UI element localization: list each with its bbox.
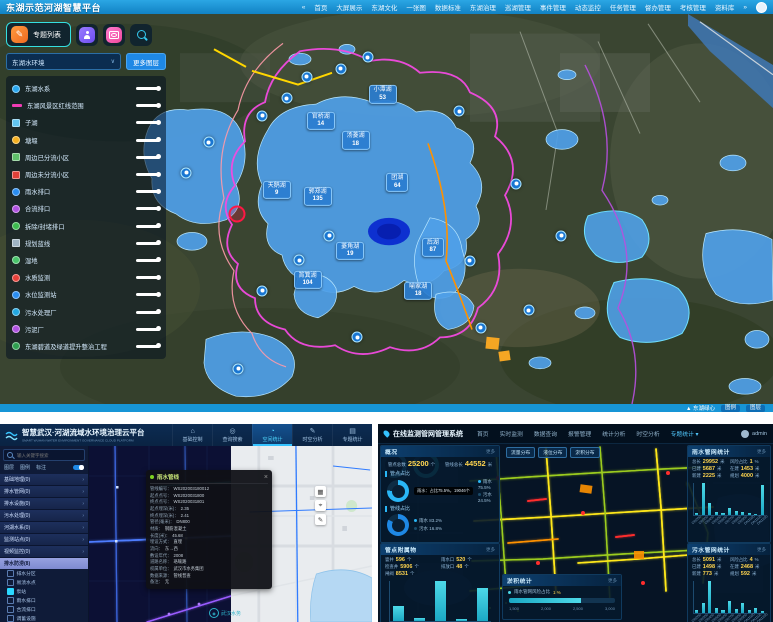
layer-toggle[interactable]	[136, 259, 160, 262]
layer-icon	[12, 104, 22, 107]
lake-name: 汤菱湖	[347, 133, 365, 139]
attribute-value: 珞喻路	[173, 559, 186, 566]
stat: 闸阀8531个	[385, 571, 439, 577]
layer-check-row[interactable]: 合流排口	[0, 605, 88, 614]
bar-column: DN800	[734, 581, 739, 613]
layer-label: 周边已分流小区	[25, 153, 131, 162]
bl-tab-icon: ✎	[310, 428, 316, 435]
nav-item[interactable]: 考核管理	[680, 2, 706, 12]
attribute-row: 备注： 无	[150, 579, 268, 586]
lake-name: 团湖	[391, 175, 403, 181]
map-poi-marker[interactable]	[335, 63, 346, 74]
layer-label: 东湖水系	[25, 84, 131, 93]
layer-row[interactable]: 周边已分流小区	[12, 149, 160, 166]
br-username: admin	[752, 431, 767, 437]
layer-group-row[interactable]: 排水设施(0)›	[0, 498, 88, 510]
attribute-key: 终点点号：	[150, 499, 171, 506]
lake-name: 郭郑湖	[309, 189, 327, 195]
bar-column: DN200	[694, 581, 699, 613]
attribute-value: 管线普查	[173, 573, 190, 580]
more-link[interactable]: 更多	[486, 449, 495, 455]
status-chip-button[interactable]: 图层	[746, 405, 765, 412]
attribute-key: 道路名称：	[150, 559, 171, 566]
chevron-right-icon: ›	[82, 513, 84, 519]
lake-name: 官桥湖	[312, 114, 330, 120]
bl-layer-sidebar: 图层图例标注 基础地理(0)› 排水管网(0)› 排水设施(0)› 污水处理(0…	[0, 446, 89, 622]
lines-donut-chart[interactable]	[387, 514, 409, 536]
bar	[708, 503, 711, 515]
nav-item[interactable]: 数据标准	[435, 2, 461, 12]
donut2-subtitle: 管线占比	[381, 504, 499, 513]
lake-label[interactable]: 小潭湖 53	[369, 85, 397, 103]
donut2-legend: 雨水 83.2%污水 16.8%	[414, 518, 442, 532]
layer-icon	[12, 119, 20, 127]
bar	[761, 485, 764, 515]
attribute-value: 直埋	[173, 539, 182, 546]
bar	[728, 601, 731, 613]
lake-label[interactable]: 筲箕湖 104	[294, 270, 322, 288]
nav-item[interactable]: 事件管理	[540, 2, 566, 12]
map-poi-marker[interactable]	[294, 255, 305, 266]
legend-item: 雨水 75.5%	[478, 479, 493, 490]
checkbox[interactable]	[7, 570, 14, 577]
nav-item[interactable]: 东湖文化	[371, 2, 397, 12]
layer-label: 周边未分流小区	[25, 170, 131, 179]
theme-dropdown[interactable]: 东湖水环境∨	[6, 53, 121, 70]
watermark-text: 武汉水务	[221, 610, 241, 617]
layer-toggle[interactable]	[136, 242, 160, 245]
bar-column: DN1200	[760, 483, 765, 515]
nav-item[interactable]: 资料库	[715, 2, 735, 12]
lake-label[interactable]: 郭郑湖 135	[304, 187, 332, 205]
alert-ring-marker[interactable]	[229, 206, 246, 223]
wave-logo-icon	[5, 430, 18, 441]
map-poi-marker[interactable]	[301, 71, 312, 82]
layer-row[interactable]: 污水处理厂	[12, 303, 160, 320]
layer-toggle[interactable]	[136, 345, 160, 348]
layer-toggle[interactable]	[136, 156, 160, 159]
lake-name: 菱角湖	[341, 244, 359, 250]
user-avatar[interactable]	[756, 2, 767, 13]
layer-label: 污泥厂	[25, 325, 131, 334]
br-user[interactable]: admin	[741, 430, 767, 438]
layer-row[interactable]: 周边未分流小区	[12, 166, 160, 183]
fittings-stats: 窨井596个雨水口520个检查井5906个排放口48个闸阀8531个	[381, 555, 499, 579]
close-icon[interactable]: ×	[264, 474, 268, 481]
lake-name: 后湖	[427, 240, 439, 246]
feature-info-popup: 雨水管线 × 管线编号： WS202003180012 起点点号： WS2020…	[146, 470, 272, 589]
layer-icon	[12, 205, 20, 213]
layer-list: 东湖水系 东湖风景区红线范围 子湖 塘堰 周边已分流小区	[6, 76, 166, 359]
map-poi-marker[interactable]	[352, 332, 363, 343]
bl-tab[interactable]: ◔ 空间统计	[252, 424, 292, 446]
points-donut-chart[interactable]	[387, 480, 409, 502]
more-link[interactable]: 更多	[486, 547, 495, 553]
layer-row[interactable]: 塘堰	[12, 132, 160, 149]
bar	[754, 608, 757, 613]
layer-toggle[interactable]	[136, 328, 160, 331]
layer-toggle[interactable]	[136, 276, 160, 279]
sewage-pipes-panel: 污水管网统计 更多 总长5091米风险占比4%已建1498米在建2468米新建7…	[687, 543, 771, 622]
layer-label: 子湖	[25, 118, 131, 127]
sidebar-tabs: 图层图例标注	[0, 464, 88, 474]
locate-tool-button[interactable]: ⌖	[315, 500, 326, 511]
layer-toggle[interactable]	[136, 207, 160, 210]
layer-group-row[interactable]: 视频监控(0)›	[0, 546, 88, 558]
check-label: 排水分区	[17, 570, 36, 577]
nav-item[interactable]: 动态监控	[575, 2, 601, 12]
layer-label: 东湖碧道及绿道提升整治工程	[25, 342, 131, 351]
section-header-flood[interactable]: 排水防涝(8)	[0, 558, 88, 569]
chevron-right-icon: ›	[82, 477, 84, 483]
bar	[715, 608, 718, 613]
layer-icon	[12, 171, 20, 179]
topic-list-button[interactable]: ✎ 专题列表	[6, 22, 71, 47]
br-nav-item[interactable]: 首页	[477, 429, 489, 438]
rain-stats: 总长29952米风险占比1%已建5687米在建1453米新建2225米规划400…	[688, 457, 770, 481]
donut-tooltip: 雨水：占比75.5%，19046个	[414, 487, 473, 495]
bar-column: DN600	[720, 581, 725, 613]
layer-check-row[interactable]: 雨水排口	[0, 596, 88, 605]
layer-label: 东湖风景区红线范围	[27, 101, 131, 110]
lake-value: 18	[347, 140, 365, 147]
map-poi-marker[interactable]	[523, 305, 534, 316]
bl-tab[interactable]: ⌂ 基础控制	[172, 424, 212, 446]
map-poi-marker[interactable]	[281, 93, 292, 104]
bar	[748, 610, 751, 613]
feature-type-dot	[150, 475, 154, 479]
layer-row[interactable]: 湿地	[12, 252, 160, 269]
bl-tab[interactable]: ▤ 专题统计	[332, 424, 372, 446]
status-chip-button[interactable]: 图例	[721, 405, 740, 412]
search-tool-button[interactable]	[130, 24, 152, 46]
layer-icon	[12, 291, 20, 299]
panel-title: 污水管网统计	[692, 545, 730, 554]
sewage-bar-chart[interactable]: DN200DN300DN400DN500DN600DN700DN800DN900…	[693, 581, 765, 614]
overview-stats: 管点总数25200个 管线总长44552米	[381, 457, 499, 469]
more-link[interactable]: 更多	[608, 578, 617, 584]
bar	[477, 588, 488, 621]
panel-title: 概况	[385, 447, 398, 456]
br-nav-item[interactable]: 统计分析	[602, 429, 625, 438]
stat: 管线总长44552米	[445, 459, 492, 468]
attribute-row: 流向： 东→西	[150, 546, 268, 553]
lake-value: 18	[409, 291, 427, 298]
fittings-panel: 管点附属物 更多 窨井596个雨水口520个检查井5906个排放口48个闸阀85…	[380, 543, 500, 622]
poi-tool-button[interactable]	[76, 24, 98, 46]
attribute-value: WS202003180012	[173, 486, 209, 493]
layer-group-label: 排水设施(0)	[4, 500, 30, 507]
map-poi-marker[interactable]	[181, 167, 192, 178]
bar	[435, 581, 446, 621]
sidebar-tab[interactable]: 标注	[36, 464, 46, 471]
chevron-right-icon: ›	[82, 537, 84, 543]
map-poi-marker[interactable]	[324, 230, 335, 241]
layer-group-row[interactable]: 监测站点(0)›	[0, 534, 88, 546]
stat: 总长5091米	[692, 557, 728, 563]
nav-back-icon[interactable]: «	[302, 4, 306, 11]
stat: 总长29952米	[692, 459, 728, 465]
attribute-key: 权属单位：	[150, 566, 171, 573]
layer-toggle[interactable]	[136, 139, 160, 142]
heatmap-mode-tab[interactable]: 淤积分布	[570, 447, 599, 458]
heatmap-mode-tab[interactable]: 流量分布	[506, 447, 535, 458]
bl-tab-icon: ⌂	[190, 428, 194, 435]
layer-row[interactable]: 东湖风景区红线范围	[12, 97, 160, 114]
heatmap-mode-tab[interactable]: 液位分布	[538, 447, 567, 458]
layer-group-label: 河湖水系(0)	[4, 524, 30, 531]
lake-value: 104	[299, 280, 317, 287]
layer-icon	[12, 325, 20, 333]
map-poi-marker[interactable]	[511, 178, 522, 189]
nav-item[interactable]: 大屏展示	[336, 2, 362, 12]
layer-group-row[interactable]: 河湖水系(0)›	[0, 522, 88, 534]
layer-row[interactable]: 拆除/封堵排口	[12, 218, 160, 235]
br-nav-item[interactable]: 实时监测	[500, 429, 523, 438]
stat: 风险占比1%	[730, 459, 766, 465]
bl-tab-icon: ◔	[270, 428, 274, 435]
br-nav-item[interactable]: 时空分析	[636, 429, 659, 438]
checkbox[interactable]	[7, 597, 14, 604]
search-icon	[137, 30, 146, 39]
bar-column: DN1000	[747, 581, 752, 613]
bar	[741, 603, 744, 613]
layer-check-row[interactable]: 泵站	[0, 587, 88, 596]
bl-tab[interactable]: ◎ 查询搜索	[212, 424, 252, 446]
layers-tool-button[interactable]: ▦	[315, 486, 326, 497]
nav-item[interactable]: 巡湖管理	[505, 2, 531, 12]
nav-item[interactable]: 东湖治理	[470, 2, 496, 12]
bar-column: DN900	[740, 581, 745, 613]
layer-group-row[interactable]: 污水处理(0)›	[0, 510, 88, 522]
nav-more-icon[interactable]: »	[743, 4, 747, 11]
map-poi-marker[interactable]	[464, 255, 475, 266]
lake-value: 9	[268, 190, 286, 197]
layer-toggle[interactable]	[136, 87, 160, 90]
lake-label[interactable]: 汤菱湖 18	[342, 131, 370, 149]
sidebar-tab[interactable]: 图层	[4, 464, 14, 471]
nav-item[interactable]: 任务管理	[610, 2, 636, 12]
layer-check-row[interactable]: 调蓄设施	[0, 614, 88, 622]
layer-row[interactable]: 污泥厂	[12, 321, 160, 338]
attribute-row: 管径(毫米)： DN800	[150, 519, 268, 526]
attribute-row: 埋设方式： 直埋	[150, 539, 268, 546]
layer-label: 雨水排口	[25, 187, 131, 196]
lake-label[interactable]: 官桥湖 14	[307, 112, 335, 130]
checkbox[interactable]	[7, 588, 14, 595]
attribute-key: 埋设方式：	[150, 539, 171, 546]
layer-toggle[interactable]	[136, 121, 160, 124]
bl-tabs: ⌂ 基础控制 ◎ 查询搜索 ◔ 空间统计 ✎ 时空分析 ▤ 专题统计	[172, 424, 372, 446]
layer-row[interactable]: 东湖碧道及绿道提升整治工程	[12, 338, 160, 355]
draw-tool-button[interactable]: ✎	[315, 514, 326, 525]
checkbox[interactable]	[7, 579, 14, 586]
bar-column: DN1100	[753, 581, 758, 613]
layer-toggle[interactable]	[136, 104, 160, 107]
map-poi-marker[interactable]	[556, 230, 567, 241]
lake-name: 筲箕湖	[299, 272, 317, 278]
stat: 在建1453米	[730, 466, 766, 472]
stat: 新建773米	[692, 571, 728, 577]
nav-item[interactable]: 一张图	[406, 2, 426, 12]
br-nav-item[interactable]: 数据查询	[534, 429, 557, 438]
layer-row[interactable]: 规划蓝线	[12, 235, 160, 252]
check-label: 雨水排口	[17, 597, 36, 604]
attribute-key: 起点埋深(米)：	[150, 506, 179, 513]
layer-check-row[interactable]: 排水分区	[0, 569, 88, 578]
br-nav-item[interactable]: 报警管理	[568, 429, 591, 438]
layer-toggle[interactable]	[136, 173, 160, 176]
bar-column: 2018	[411, 581, 429, 621]
layer-toggle[interactable]	[136, 190, 160, 193]
lake-label[interactable]: 喻家湖 18	[404, 281, 432, 299]
map-poi-marker[interactable]	[233, 363, 244, 374]
layer-group-row[interactable]: 基础地理(0)›	[0, 474, 88, 486]
fittings-bar-chart[interactable]: 20172018201920202021	[389, 581, 491, 622]
map-status-bar: ▲ 东湖绿心 图例图层	[0, 404, 773, 412]
nav-item[interactable]: 首页	[314, 2, 327, 12]
layer-icon	[12, 239, 20, 247]
br-nav-active[interactable]: 专题统计 ▾	[671, 429, 699, 438]
layer-icon	[12, 308, 20, 316]
popup-title: 雨水管线	[157, 473, 261, 481]
layer-toggle[interactable]	[136, 311, 160, 314]
layer-row[interactable]: 雨水排口	[12, 183, 160, 200]
bar-column: DN1100	[753, 483, 758, 515]
bar-column: DN800	[734, 483, 739, 515]
stat: 规划4000米	[730, 473, 766, 479]
bar-column: DN600	[720, 483, 725, 515]
top-nav: « 首页大屏展示东湖文化一张图数据标准东湖治理巡湖管理事件管理动态监控任务管理督…	[302, 2, 767, 13]
bar	[456, 619, 467, 621]
theme-dropdown-value: 东湖水环境	[12, 57, 45, 67]
more-layers-button[interactable]: 更多图层	[126, 53, 166, 70]
lake-value: 19	[341, 251, 359, 258]
pipeline-map[interactable]: ▦ ⌖ ✎ 雨水管线 × 管线编号： WS202003180012 起点	[89, 446, 372, 622]
silt-panel: 淤积统计 更多 雨水管网风险占比 1 % 1,5002,0002,5003,00…	[502, 574, 622, 620]
lake-label[interactable]: 天鹅湖 9	[263, 180, 291, 198]
map-poi-marker[interactable]	[362, 52, 373, 63]
bar	[702, 483, 705, 515]
attribute-row: 权属单位： 武汉市水务集团	[150, 566, 268, 573]
layer-row[interactable]: 子湖	[12, 114, 160, 131]
overview-panel: 概况 更多 管点总数25200个 管线总长44552米 管点占比 雨水：占比75…	[380, 445, 500, 543]
chevron-right-icon: ›	[82, 501, 84, 507]
bar-column: DN700	[727, 581, 732, 613]
bar-column: DN300	[701, 483, 706, 515]
east-lake-platform-section: 东湖示范河湖智慧平台 « 首页大屏展示东湖文化一张图数据标准东湖治理巡湖管理事件…	[0, 0, 773, 412]
layer-check-row[interactable]: 易渍水点	[0, 578, 88, 587]
map-poi-marker[interactable]	[454, 106, 465, 117]
layer-icon	[12, 256, 20, 264]
rain-bar-chart[interactable]: DN200DN300DN400DN500DN600DN700DN800DN900…	[693, 483, 765, 516]
layer-row[interactable]: 水位监测站	[12, 286, 160, 303]
person-icon	[83, 31, 91, 39]
map-poi-marker[interactable]	[475, 322, 486, 333]
donut1-legend: 雨水 75.5%污水 24.5%	[478, 479, 493, 503]
bl-tab-label: 查询搜索	[223, 436, 243, 443]
bar-column: DN900	[740, 483, 745, 515]
layer-row[interactable]: 东湖水系	[12, 80, 160, 97]
camera-icon	[109, 31, 119, 39]
checkbox[interactable]	[7, 615, 14, 622]
map-poi-marker[interactable]	[203, 137, 214, 148]
legend-item: 污水 16.8%	[414, 526, 442, 532]
sidebar-search-input[interactable]	[15, 452, 81, 459]
more-link[interactable]: 更多	[757, 449, 766, 455]
chevron-right-icon: ›	[82, 549, 84, 555]
bar-column: DN200	[694, 483, 699, 515]
lake-label[interactable]: 团湖 64	[386, 173, 408, 191]
bar	[754, 514, 757, 515]
bl-tab[interactable]: ✎ 时空分析	[292, 424, 332, 446]
layer-icon	[12, 153, 20, 161]
attribute-value: 无	[165, 579, 169, 586]
donut1-subtitle: 管点占比	[381, 469, 499, 478]
bl-tab-label: 空间统计	[263, 436, 283, 443]
layer-toolbox: ✎ 专题列表 东湖水环境∨ 更多图层 东湖水系 东湖风景区红线范围	[6, 22, 166, 359]
lake-value: 14	[312, 121, 330, 128]
layer-row[interactable]: 合流排口	[12, 200, 160, 217]
stat: 新建2225米	[692, 473, 728, 479]
layer-label: 水位监测站	[25, 290, 131, 299]
lake-name: 天鹅湖	[268, 182, 286, 188]
bl-title: 智慧武汉·河湖流域水环境治理云平台	[22, 427, 165, 438]
sidebar-tab[interactable]: 图例	[20, 464, 30, 471]
layer-group-label: 监测站点(0)	[4, 536, 30, 543]
lake-label[interactable]: 后湖 87	[422, 238, 444, 256]
attribute-key: 管线编号：	[150, 486, 171, 493]
stat: 管点总数25200个	[388, 459, 435, 468]
camera-tool-button[interactable]	[103, 24, 125, 46]
layer-icon	[12, 274, 20, 282]
bar	[715, 512, 718, 515]
layer-group-label: 基础地理(0)	[4, 476, 30, 483]
map-poi-marker[interactable]	[257, 285, 268, 296]
map-poi-marker[interactable]	[257, 110, 268, 121]
stat: 雨水口520个	[441, 557, 495, 563]
lake-label[interactable]: 菱角湖 19	[336, 242, 364, 260]
layer-toggle[interactable]	[136, 225, 160, 228]
droplet-logo-icon	[382, 429, 390, 437]
layer-label: 水质监测	[25, 273, 131, 282]
axis-tick: 3,000	[605, 606, 615, 611]
stat: 在建2468米	[730, 564, 766, 570]
chevron-right-icon: ›	[82, 489, 84, 495]
layer-row[interactable]: 水质监测	[12, 269, 160, 286]
bar-column: 2021	[473, 581, 491, 621]
checkbox[interactable]	[7, 606, 14, 613]
watermark: ◉ 武汉水务	[209, 608, 241, 618]
layer-group-row[interactable]: 排水管网(0)›	[0, 486, 88, 498]
sidebar-search[interactable]	[3, 449, 85, 461]
silt-legend: 雨水管网风险占比 1 %	[503, 586, 621, 596]
bl-header: 智慧武汉·河湖流域水环境治理云平台 SMART WUHAN WATER ENVI…	[0, 424, 372, 446]
bar-column: 2020	[452, 581, 470, 621]
layer-group-label: 污水处理(0)	[4, 512, 30, 519]
sidebar-toggle[interactable]	[73, 465, 84, 471]
axis-tick: 1,500	[509, 606, 519, 611]
heatmap-mode-tabs: 流量分布液位分布淤积分布	[506, 447, 600, 458]
bar	[748, 513, 751, 515]
check-label: 调蓄设施	[17, 615, 36, 622]
nav-item[interactable]: 督办管理	[645, 2, 671, 12]
layer-toggle[interactable]	[136, 293, 160, 296]
watermark-logo-icon: ◉	[209, 608, 219, 618]
br-nav: 首页实时监测数据查询报警管理统计分析时空分析 专题统计 ▾	[477, 429, 698, 438]
more-link[interactable]: 更多	[757, 547, 766, 553]
lake-name: 小潭湖	[374, 87, 392, 93]
